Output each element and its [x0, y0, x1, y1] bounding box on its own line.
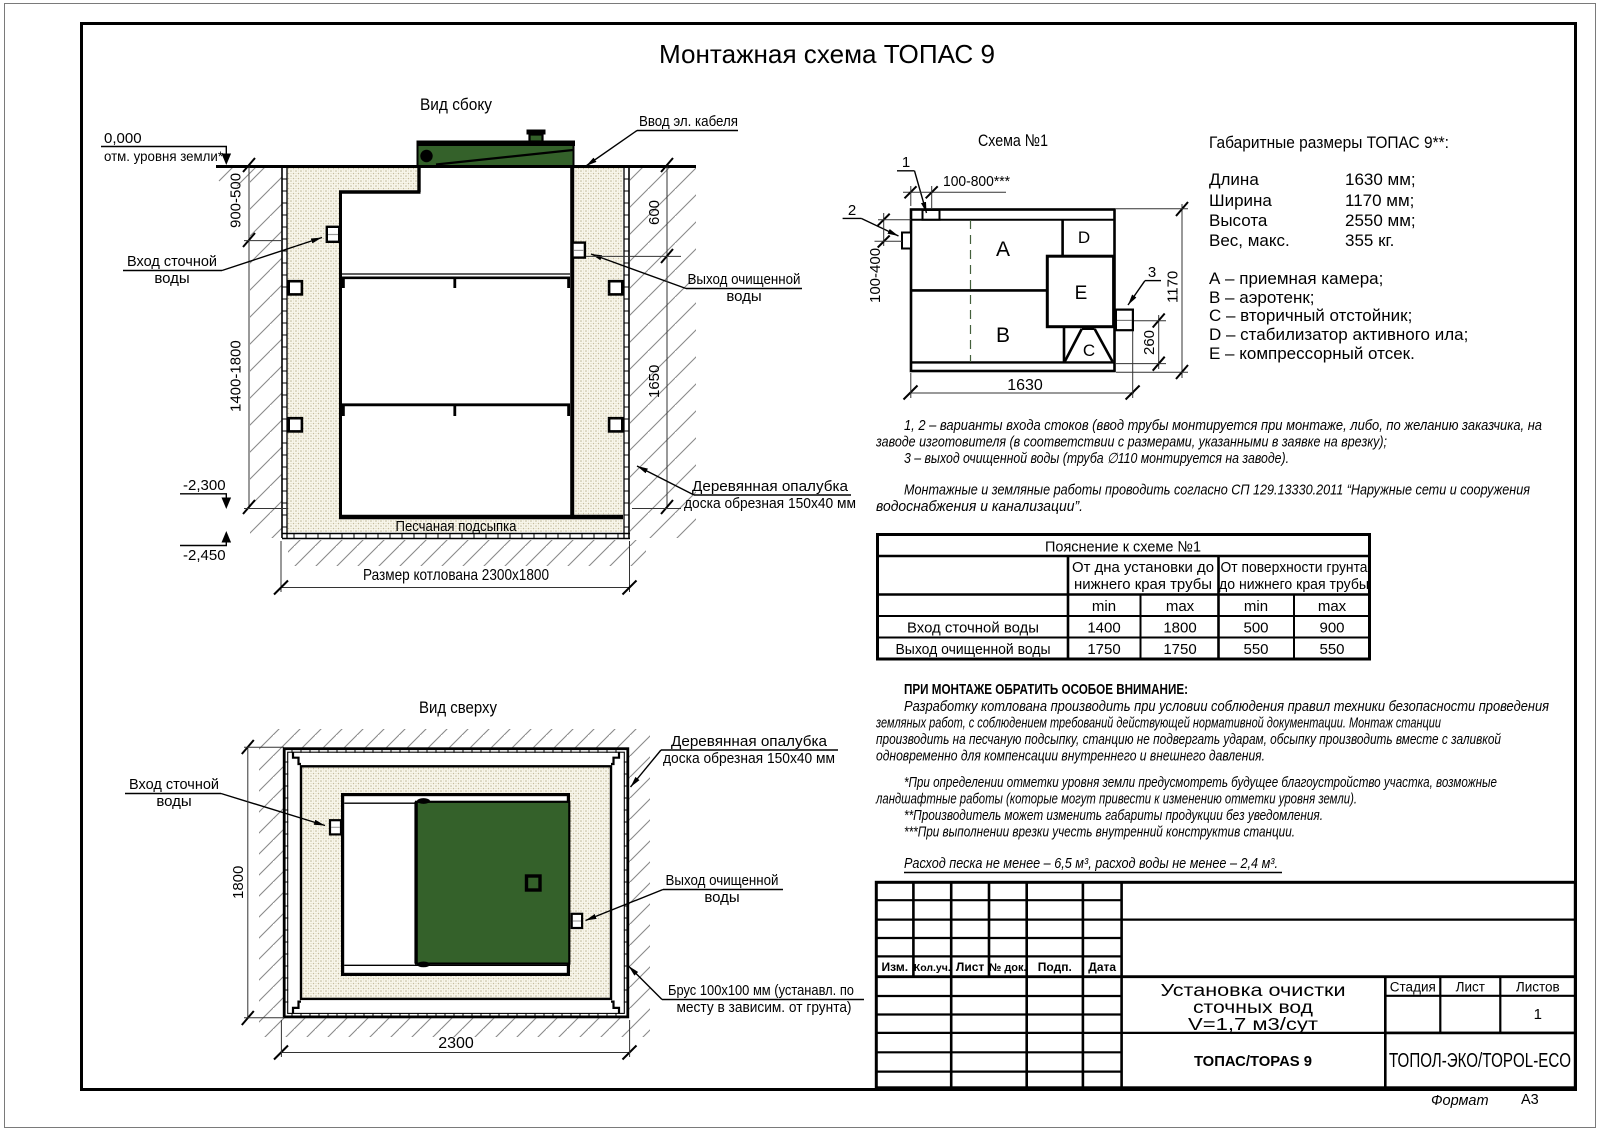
svg-text:ландшафтные работы (которые мо: ландшафтные работы (которые могут привес…: [875, 792, 1357, 808]
svg-text:min: min: [1244, 598, 1268, 615]
svg-text:Вид сбоку: Вид сбоку: [420, 95, 492, 114]
svg-text:Брус 100х100 мм (устанавл. по: Брус 100х100 мм (устанавл. по: [668, 982, 854, 999]
svg-text:D – стабилизатор активного ила: D – стабилизатор активного ила;: [1209, 325, 1468, 344]
svg-text:550: 550: [1319, 641, 1344, 658]
svg-text:2: 2: [848, 202, 856, 219]
svg-text:Монтажная схема ТОПАС 9: Монтажная схема ТОПАС 9: [659, 39, 995, 69]
svg-text:Е – компрессорный отсек.: Е – компрессорный отсек.: [1209, 344, 1415, 363]
svg-text:Выход очищенной: Выход очищенной: [666, 872, 779, 889]
svg-text:Стадия: Стадия: [1390, 980, 1436, 995]
svg-text:Расход песка не менее – 6,5 м³: Расход песка не менее – 6,5 м³, расход в…: [904, 856, 1278, 872]
svg-text:земляных работ, с соблюдением: земляных работ, с соблюдением требований…: [875, 716, 1441, 732]
svg-text:воды: воды: [726, 288, 761, 305]
svg-text:B: B: [996, 324, 1010, 347]
svg-text:600: 600: [646, 200, 663, 225]
svg-text:2300: 2300: [438, 1035, 474, 1052]
svg-text:Вход сточной воды: Вход сточной воды: [907, 620, 1039, 637]
svg-text:Деревянная опалубка: Деревянная опалубка: [671, 733, 828, 750]
svg-text:Ввод эл. кабеля: Ввод эл. кабеля: [639, 113, 738, 130]
svg-text:Листов: Листов: [1516, 980, 1560, 995]
svg-text:1650: 1650: [646, 365, 663, 398]
svg-text:3: 3: [1148, 264, 1156, 281]
svg-text:1170 мм;: 1170 мм;: [1345, 191, 1414, 210]
svg-text:Размер котлована 2300х1800: Размер котлована 2300х1800: [363, 567, 549, 584]
svg-text:воды: воды: [154, 270, 189, 287]
svg-text:max: max: [1318, 598, 1347, 615]
svg-text:1170: 1170: [1165, 271, 1182, 303]
svg-text:воды: воды: [156, 793, 191, 810]
svg-text:А – приемная камера;: А – приемная камера;: [1209, 269, 1383, 288]
svg-text:E: E: [1075, 283, 1088, 304]
svg-text:500: 500: [1243, 620, 1268, 637]
svg-text:доска обрезная 150х40 мм: доска обрезная 150х40 мм: [663, 750, 835, 767]
svg-text:Высота: Высота: [1209, 211, 1268, 230]
svg-text:1800: 1800: [1163, 620, 1196, 637]
svg-text:месту в зависим. от грунта): месту в зависим. от грунта): [677, 999, 852, 1016]
svg-text:Выход очищенной: Выход очищенной: [688, 271, 801, 288]
svg-text:отм. уровня земли*: отм. уровня земли*: [104, 148, 224, 164]
svg-text:Песчаная подсыпка: Песчаная подсыпка: [396, 518, 518, 535]
svg-text:-2,450: -2,450: [183, 547, 226, 564]
svg-text:Выход очищенной воды: Выход очищенной воды: [896, 641, 1051, 658]
svg-text:A: A: [996, 238, 1010, 261]
svg-text:1: 1: [1534, 1006, 1542, 1023]
svg-text:1, 2 – варианты входа стоков: 1, 2 – варианты входа стоков (ввод трубы…: [904, 418, 1542, 434]
svg-text:Лист: Лист: [1456, 980, 1485, 995]
svg-text:*При определении отметки уровн: *При определении отметки уровня земли пр…: [904, 775, 1497, 791]
svg-text:одновременно для компенсации в: одновременно для компенсации внутреннего…: [876, 749, 1265, 765]
svg-text:2550 мм;: 2550 мм;: [1345, 211, 1416, 230]
svg-text:1750: 1750: [1163, 641, 1196, 658]
svg-text:3 – выход очищенной воды (труб: 3 – выход очищенной воды (труба ∅110 мон…: [904, 451, 1289, 467]
svg-text:Схема №1: Схема №1: [978, 131, 1048, 150]
svg-text:С – вторичный отстойник;: С – вторичный отстойник;: [1209, 306, 1412, 325]
svg-text:Вид сверху: Вид сверху: [419, 698, 497, 717]
svg-text:Габаритные размеры ТОПАС 9**:: Габаритные размеры ТОПАС 9**:: [1209, 133, 1449, 152]
svg-text:От поверхности грунта: От поверхности грунта: [1221, 560, 1369, 576]
svg-text:Подп.: Подп.: [1038, 960, 1072, 974]
svg-text:550: 550: [1243, 641, 1268, 658]
svg-text:1630: 1630: [1007, 377, 1043, 394]
svg-text:***При выполнении врезки учест: ***При выполнении врезки учесть внутренн…: [904, 825, 1295, 841]
svg-text:V=1,7 м3/сут: V=1,7 м3/сут: [1188, 1014, 1318, 1034]
svg-text:№ док.: № док.: [989, 962, 1027, 974]
svg-text:Монтажные и земляные работы пр: Монтажные и земляные работы проводить со…: [904, 483, 1530, 499]
svg-text:Деревянная опалубка: Деревянная опалубка: [692, 478, 849, 495]
svg-text:Разработку котлована производи: Разработку котлована производить при усл…: [904, 699, 1549, 715]
svg-text:**Производитель может изменить: **Производитель может изменить габариты …: [904, 808, 1323, 824]
svg-text:заводе изготовителя (в соответ: заводе изготовителя (в соответствии с ра…: [875, 435, 1387, 451]
svg-text:0,000: 0,000: [104, 130, 142, 147]
svg-text:до нижнего края трубы: до нижнего края трубы: [1219, 577, 1369, 593]
svg-text:Дата: Дата: [1088, 960, 1116, 974]
svg-text:C: C: [1083, 341, 1095, 360]
svg-text:1800: 1800: [230, 866, 247, 899]
svg-text:min: min: [1092, 598, 1116, 615]
svg-text:нижнего края трубы: нижнего края трубы: [1074, 577, 1212, 593]
svg-text:900: 900: [1319, 620, 1344, 637]
svg-text:доска обрезная 150х40 мм: доска обрезная 150х40 мм: [684, 495, 856, 512]
svg-text:Вход сточной: Вход сточной: [129, 776, 219, 793]
svg-text:Пояснение к схеме №1: Пояснение к схеме №1: [1045, 539, 1201, 556]
svg-text:ТОПАС/TOPAS 9: ТОПАС/TOPAS 9: [1194, 1053, 1312, 1070]
svg-text:D: D: [1078, 228, 1090, 247]
svg-text:ТОПОЛ-ЭКО/TOPOL-ECO: ТОПОЛ-ЭКО/TOPOL-ECO: [1389, 1050, 1571, 1072]
svg-text:-2,300: -2,300: [183, 477, 226, 494]
svg-text:900-500: 900-500: [228, 173, 245, 228]
svg-text:От дна установки до: От дна установки до: [1072, 560, 1214, 576]
svg-text:Лист: Лист: [956, 960, 984, 974]
svg-text:1: 1: [902, 154, 910, 171]
svg-text:А3: А3: [1521, 1092, 1539, 1108]
svg-text:Вес, макс.: Вес, макс.: [1209, 231, 1290, 250]
svg-text:260: 260: [1141, 330, 1158, 355]
svg-text:производить на песчаную подсып: производить на песчаную подсыпку, станци…: [876, 732, 1501, 748]
svg-text:100-800***: 100-800***: [943, 173, 1010, 190]
svg-text:1750: 1750: [1087, 641, 1120, 658]
svg-text:водоснабжения и канализации”.: водоснабжения и канализации”.: [876, 499, 1083, 515]
svg-text:Ширина: Ширина: [1209, 191, 1272, 210]
svg-text:1630 мм;: 1630 мм;: [1345, 170, 1416, 189]
svg-text:ПРИ МОНТАЖЕ ОБРАТИТЬ ОСОБОЕ ВН: ПРИ МОНТАЖЕ ОБРАТИТЬ ОСОБОЕ ВНИМАНИЕ:: [904, 681, 1188, 698]
svg-text:1400-1800: 1400-1800: [228, 340, 245, 412]
svg-text:Кол.уч.: Кол.уч.: [914, 962, 951, 974]
svg-text:100-400: 100-400: [867, 248, 884, 303]
svg-text:Вход сточной: Вход сточной: [127, 253, 217, 270]
svg-text:Изм.: Изм.: [882, 960, 909, 974]
svg-text:Длина: Длина: [1209, 170, 1259, 189]
svg-text:В – аэротенк;: В – аэротенк;: [1209, 288, 1315, 307]
svg-text:воды: воды: [704, 889, 739, 906]
svg-text:355 кг.: 355 кг.: [1345, 231, 1394, 250]
svg-text:1400: 1400: [1087, 620, 1120, 637]
svg-text:Формат: Формат: [1431, 1093, 1489, 1109]
svg-text:max: max: [1166, 598, 1195, 615]
